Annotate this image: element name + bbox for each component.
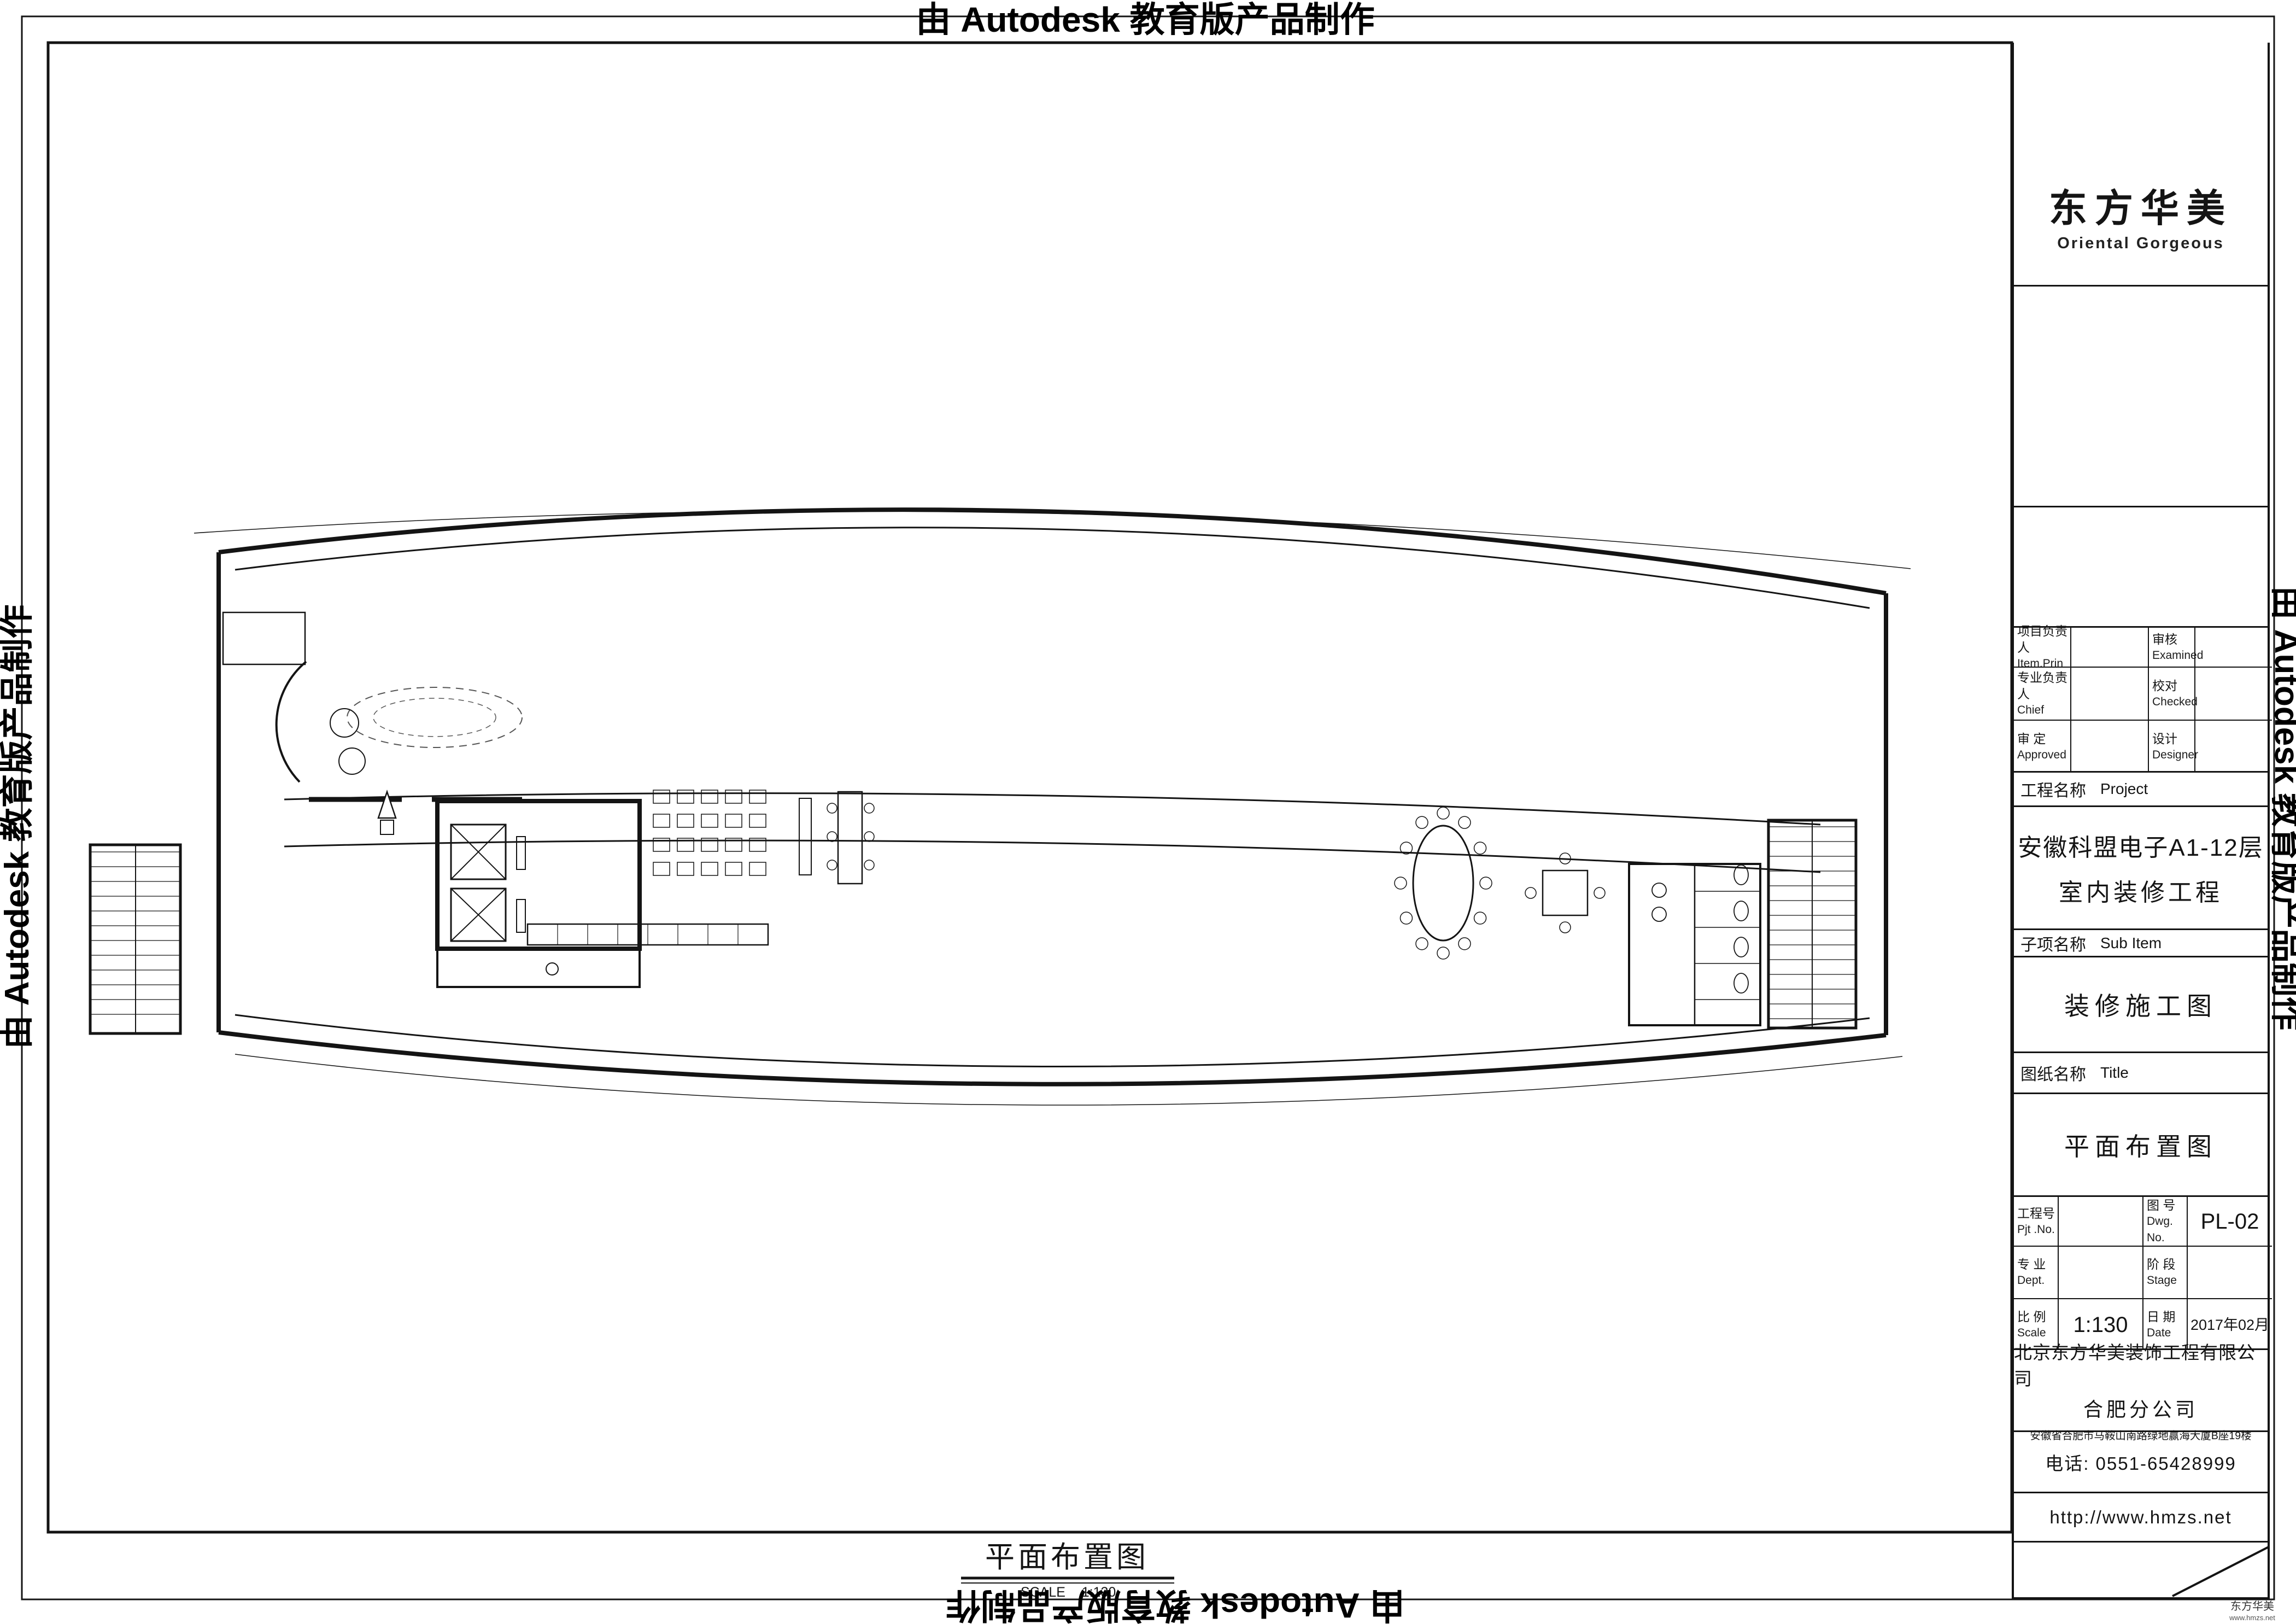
- outer-border: [22, 16, 2274, 1599]
- toilet-icon: [1734, 901, 1748, 921]
- sheetname-header: 图纸名称Title: [2014, 1053, 2268, 1094]
- personnel-table: 项目负责人Item.Prin 审核Examined 专业负责人Chief 校对C…: [2014, 628, 2268, 773]
- drawing-sheet: { "watermark": "由 Autodesk 教育版产品制作", "sh…: [0, 0, 2296, 1624]
- training-chair: [725, 790, 742, 803]
- elevator-core: [437, 801, 640, 987]
- conference-chair: [1474, 912, 1486, 924]
- chair: [1594, 887, 1605, 898]
- training-chair: [701, 790, 718, 803]
- meta-value: [2188, 1247, 2272, 1299]
- meta-label: 工程号Pjt .No.: [2014, 1197, 2059, 1247]
- copyright-english: [2014, 287, 2268, 507]
- caption-scale-value: 1:130: [1082, 1585, 1116, 1600]
- copyright-chinese: [2014, 507, 2268, 628]
- training-chair: [749, 790, 766, 803]
- company-website: http://www.hmzs.net: [2014, 1493, 2268, 1543]
- conference-chair: [1474, 842, 1486, 854]
- meta-value: [2059, 1247, 2143, 1299]
- water-meter-icon: [546, 963, 558, 975]
- empty-cell: [2014, 1543, 2268, 1597]
- logo-section: 东方华美 Oriental Gorgeous: [2014, 43, 2268, 287]
- company-phone: 电话: 0551-65428999: [2014, 1432, 2268, 1493]
- company-name: 北京东方华美装饰工程有限公司: [2014, 1338, 2268, 1391]
- personnel-label: 项目负责人Item.Prin: [2014, 628, 2071, 668]
- caption-scale-label: SCALE: [1021, 1585, 1065, 1600]
- personnel-value: [2071, 721, 2149, 773]
- elevator-x: [451, 889, 506, 941]
- water-room: [437, 949, 640, 987]
- logo-stroke: [2146, 75, 2197, 156]
- chair: [864, 803, 874, 813]
- sink-icon: [1652, 883, 1666, 897]
- phone-room: [223, 612, 305, 664]
- meeting-table: [838, 792, 862, 884]
- training-chair: [653, 790, 670, 803]
- training-chair: [701, 862, 718, 875]
- project-header: 工程名称Project: [2014, 773, 2268, 807]
- subitem-value: 装修施工图: [2014, 957, 2268, 1053]
- lectern: [799, 798, 811, 875]
- conference-chair: [1416, 816, 1428, 828]
- elevator-x: [451, 825, 506, 879]
- company-block: 北京东方华美装饰工程有限公司 合肥分公司 安徽省合肥市马鞍山南路绿地赢海大厦B座…: [2014, 1350, 2268, 1432]
- brand-name-en: Oriental Gorgeous: [2057, 235, 2224, 253]
- meta-label: 专 业Dept.: [2014, 1247, 2059, 1299]
- top-wall-outer: [219, 510, 1886, 593]
- conference-chair: [1416, 938, 1428, 950]
- diagonal-line: [2014, 1543, 2270, 1597]
- personnel-value: [2071, 628, 2149, 668]
- core-walls: [437, 801, 640, 949]
- reception-curved-wall: [277, 662, 306, 782]
- sink-icon: [1652, 907, 1666, 921]
- conference-table: [1413, 826, 1473, 940]
- conference-chair: [1437, 807, 1449, 819]
- floor-plan-canvas: 平面布置图 SCALE 1:130: [0, 0, 2296, 1624]
- training-chair: [701, 814, 718, 827]
- elevator-counterweight: [517, 899, 525, 932]
- training-chair: [725, 814, 742, 827]
- personnel-label: 设计Designer: [2149, 721, 2195, 773]
- training-chair: [653, 862, 670, 875]
- chair: [1560, 922, 1571, 933]
- corridor-lower: [284, 840, 1820, 872]
- personnel-label: 审 定Approved: [2014, 721, 2071, 773]
- chair: [827, 803, 837, 813]
- meta-table: 工程号Pjt .No. 图 号Dwg. No. PL-02 专 业Dept. 阶…: [2014, 1197, 2268, 1350]
- building-shell: [194, 510, 1911, 1105]
- training-chair: [677, 790, 694, 803]
- inner-border: [48, 43, 2012, 1532]
- square-table: [1543, 871, 1588, 915]
- training-chair: [653, 814, 670, 827]
- chair: [864, 860, 874, 870]
- personnel-value: [2071, 668, 2149, 721]
- drawing-number: PL-02: [2188, 1197, 2272, 1247]
- training-chair: [725, 862, 742, 875]
- subitem-header: 子项名称Sub Item: [2014, 930, 2268, 957]
- lobby-oval-inner: [373, 698, 496, 737]
- personnel-label: 审核Examined: [2149, 628, 2195, 668]
- chair: [827, 860, 837, 870]
- north-arrow-icon: [378, 792, 396, 818]
- brand-name-cn: 东方华美: [2049, 183, 2233, 235]
- company-branch: 合肥分公司: [2083, 1394, 2198, 1422]
- meta-value: [2059, 1197, 2143, 1247]
- caption: 平面布置图 SCALE 1:130: [961, 1541, 1174, 1600]
- caption-title: 平面布置图: [985, 1541, 1149, 1574]
- conference-chair: [1459, 938, 1471, 950]
- plant-icon: [330, 709, 359, 737]
- training-chair: [749, 862, 766, 875]
- chair: [864, 832, 874, 842]
- title-block: 东方华美 Oriental Gorgeous 项目负责人Item.Prin 审核…: [2012, 43, 2270, 1599]
- meta-label: 阶 段Stage: [2143, 1247, 2188, 1299]
- conference-chair: [1437, 947, 1449, 959]
- toilet-icon: [1734, 937, 1748, 957]
- meta-label: 图 号Dwg. No.: [2143, 1197, 2188, 1247]
- personnel-value: [2195, 721, 2272, 773]
- conference-chair: [1400, 912, 1412, 924]
- conference-chair: [1459, 816, 1471, 828]
- top-wall-inner: [235, 528, 1870, 608]
- company-logo-icon: [2045, 49, 2237, 183]
- personnel-label: 校对Checked: [2149, 668, 2195, 721]
- personnel-label: 专业负责人Chief: [2014, 668, 2071, 721]
- personnel-value: [2195, 628, 2272, 668]
- personnel-value: [2195, 668, 2272, 721]
- toilet-icon: [1734, 973, 1748, 993]
- conference-chair: [1395, 877, 1407, 889]
- lobby: [277, 662, 522, 834]
- plant-icon: [339, 748, 365, 774]
- training-chair: [677, 814, 694, 827]
- project-name: 安徽科盟电子A1-12层 室内装修工程: [2014, 807, 2268, 930]
- sheetname-value: 平面布置图: [2014, 1094, 2268, 1197]
- conference-chair: [1480, 877, 1492, 889]
- training-chair: [677, 862, 694, 875]
- training-chair: [749, 814, 766, 827]
- chair: [1525, 887, 1536, 898]
- north-box: [380, 820, 394, 834]
